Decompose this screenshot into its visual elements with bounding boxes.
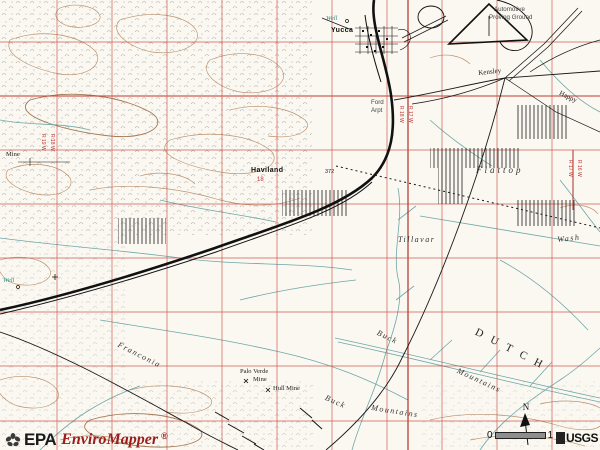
scale-one: 1 <box>548 430 554 441</box>
map-label-tillavar: Tillavar <box>398 236 435 244</box>
map-label-range-r18w: R 18 W <box>398 106 403 123</box>
map-label-wash-flattop: Wash <box>557 234 581 244</box>
epa-flower-icon <box>4 432 22 448</box>
map-label-range-r17w-2: R 17 W <box>567 160 572 177</box>
map-label-mine-west: Mine <box>6 152 20 159</box>
map-label-ford-arpt-line1: Ford <box>371 100 384 106</box>
map-label-well-west: Well <box>3 278 14 285</box>
map-label-range-r17w: R 17 W <box>407 106 412 123</box>
map-label-dutch-flat-region: DUTCH <box>473 327 552 374</box>
map-label-buck-lower: Buck <box>324 394 347 410</box>
map-label-franconia: Franconia <box>116 341 162 370</box>
map-label-buck-upper: Buck <box>375 329 398 346</box>
map-label-mountains-lower: Mountains <box>371 404 419 419</box>
epa-enviromapper-logo: EPA EnviroMapper ® <box>4 430 168 450</box>
registered-mark: ® <box>161 431 168 441</box>
usgs-logo-icon <box>556 432 565 444</box>
epa-wordmark: EPA <box>24 430 56 450</box>
north-indicator: N <box>515 402 537 450</box>
enviromapper-map-view[interactable]: WellYuccaAutomotiveProving GroundKensley… <box>0 0 600 450</box>
map-label-yucca: Yucca <box>331 27 353 34</box>
map-label-proving-ground-line2: Proving Ground <box>489 15 532 21</box>
map-label-benchmark-372: 372 <box>325 170 334 176</box>
map-label-section-18: 18 <box>257 177 264 183</box>
map-label-hull-mine: Hull Mine <box>273 386 300 393</box>
north-label: N <box>515 402 537 412</box>
map-label-ford-arpt-line2: Arpt <box>371 108 382 114</box>
map-label-happy: Happy <box>558 90 578 104</box>
map-label-range-r18w-2: R 18 W <box>49 134 54 151</box>
map-label-kensley: Kensley <box>478 68 502 77</box>
scale-bar: 0 1 <box>487 430 553 441</box>
map-labels: WellYuccaAutomotiveProving GroundKensley… <box>0 0 600 450</box>
scale-zero: 0 <box>487 430 493 441</box>
map-label-flattop: Flattop <box>476 166 524 175</box>
usgs-attribution: USGS <box>556 431 598 445</box>
map-label-haviland: Haviland <box>251 167 283 174</box>
map-label-range-r16w-2: R 16 W <box>576 160 581 177</box>
map-label-well-north: Well <box>326 16 337 23</box>
product-name: EnviroMapper <box>61 431 158 449</box>
map-label-palo-verde-mine-line1: Palo Verde <box>240 369 268 376</box>
map-label-mountains-upper: Mountains <box>456 367 503 394</box>
scale-bar-rule <box>495 432 546 439</box>
map-label-range-r19w: R 19 W <box>40 134 45 151</box>
map-label-palo-verde-mine-line2: Mine <box>253 377 267 384</box>
map-label-proving-ground-line1: Automotive <box>494 7 525 13</box>
usgs-label: USGS <box>566 431 598 445</box>
